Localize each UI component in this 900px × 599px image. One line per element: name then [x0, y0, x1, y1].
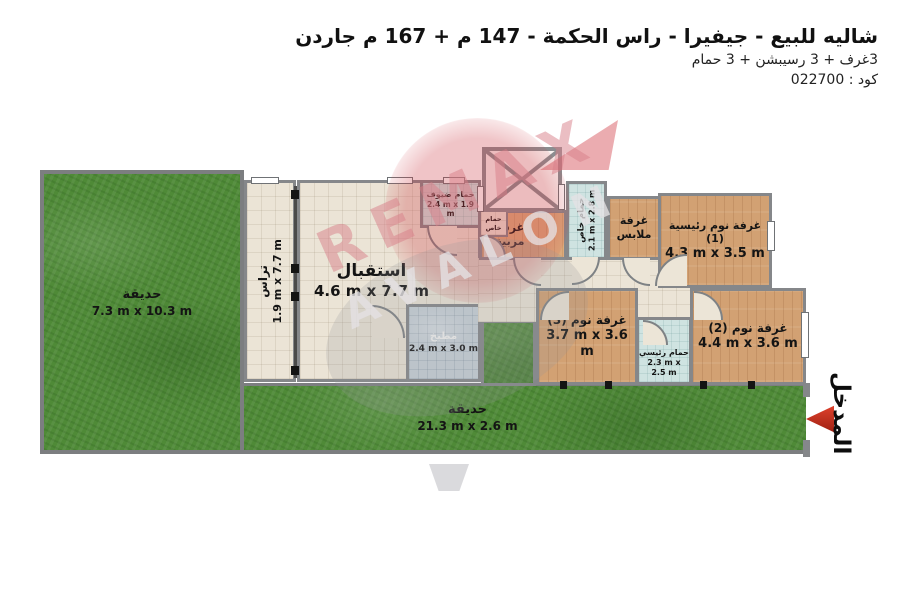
dressing-room: غرفة ملابس [607, 196, 661, 260]
listing-header: شاليه للبيع - جيفيرا - راس الحكمة - 147 … [295, 24, 878, 88]
kitchen-label: مطبخ 2.4 m x 3.0 m [409, 331, 478, 355]
window-tick [605, 381, 612, 389]
private-bathroom: حمام خاص 2.1 m x 2.8 m [566, 181, 607, 260]
watermark-basket [429, 464, 469, 491]
garden-bottom-label: حديقة 21.3 m x 2.6 m [417, 402, 517, 433]
window [801, 312, 809, 358]
guest-bathroom: حمام ضيوف 2.4 m x 1.9 m [420, 180, 481, 228]
listing-subtitle: 3غرف + 3 رسيبشن + 3 حمام [295, 52, 878, 68]
window-tick [700, 381, 707, 389]
entrance-label: المدخل [828, 372, 854, 492]
window [477, 186, 484, 212]
garden-left: حديقة 7.3 m x 10.3 m [40, 170, 244, 454]
guest-bathroom-label: حمام ضيوف 2.4 m x 1.9 m [423, 190, 478, 219]
floor-plan-page: شاليه للبيع - جيفيرا - راس الحكمة - 147 … [0, 0, 900, 599]
window [558, 184, 565, 210]
window-tick [748, 381, 755, 389]
door-handle [291, 292, 299, 301]
door-handle [291, 190, 299, 199]
small-private-bathroom-label: حمام خاص [485, 215, 501, 231]
private-bathroom-label: حمام خاص 2.1 m x 2.8 m [576, 190, 597, 251]
window-tick [560, 381, 567, 389]
door-handle [291, 264, 299, 273]
window [443, 177, 465, 184]
reception-label: استقبال 4.6 m x 7.7 m [314, 261, 429, 301]
bedroom-2-label: غرفة نوم (2) 4.4 m x 3.6 m [698, 321, 798, 352]
window [767, 221, 775, 251]
garden-bottom: حديقة 21.3 m x 2.6 m [244, 383, 806, 454]
main-bathroom-label: حمام رئيسي 2.3 m x 2.5 m [639, 348, 689, 378]
stair-shaft [482, 147, 562, 212]
wall-stub [803, 440, 810, 457]
wall-stub [803, 383, 810, 397]
listing-code: كود : 022700 [295, 72, 878, 88]
terrace: تراس 1.9 m x 7.7 m [244, 180, 296, 382]
window [251, 177, 279, 184]
terrace-label: تراس 1.9 m x 7.7 m [256, 239, 285, 323]
kitchen: مطبخ 2.4 m x 3.0 m [406, 304, 481, 382]
sliding-door [294, 186, 297, 378]
door-handle [291, 366, 299, 375]
listing-title: شاليه للبيع - جيفيرا - راس الحكمة - 147 … [295, 24, 878, 49]
dressing-room-label: غرفة ملابس [617, 214, 652, 242]
garden-patch [481, 320, 536, 386]
x-cross-icon [486, 151, 558, 208]
window [387, 177, 413, 184]
small-private-bathroom: حمام خاص [479, 210, 508, 237]
garden-left-label: حديقة 7.3 m x 10.3 m [92, 287, 192, 318]
